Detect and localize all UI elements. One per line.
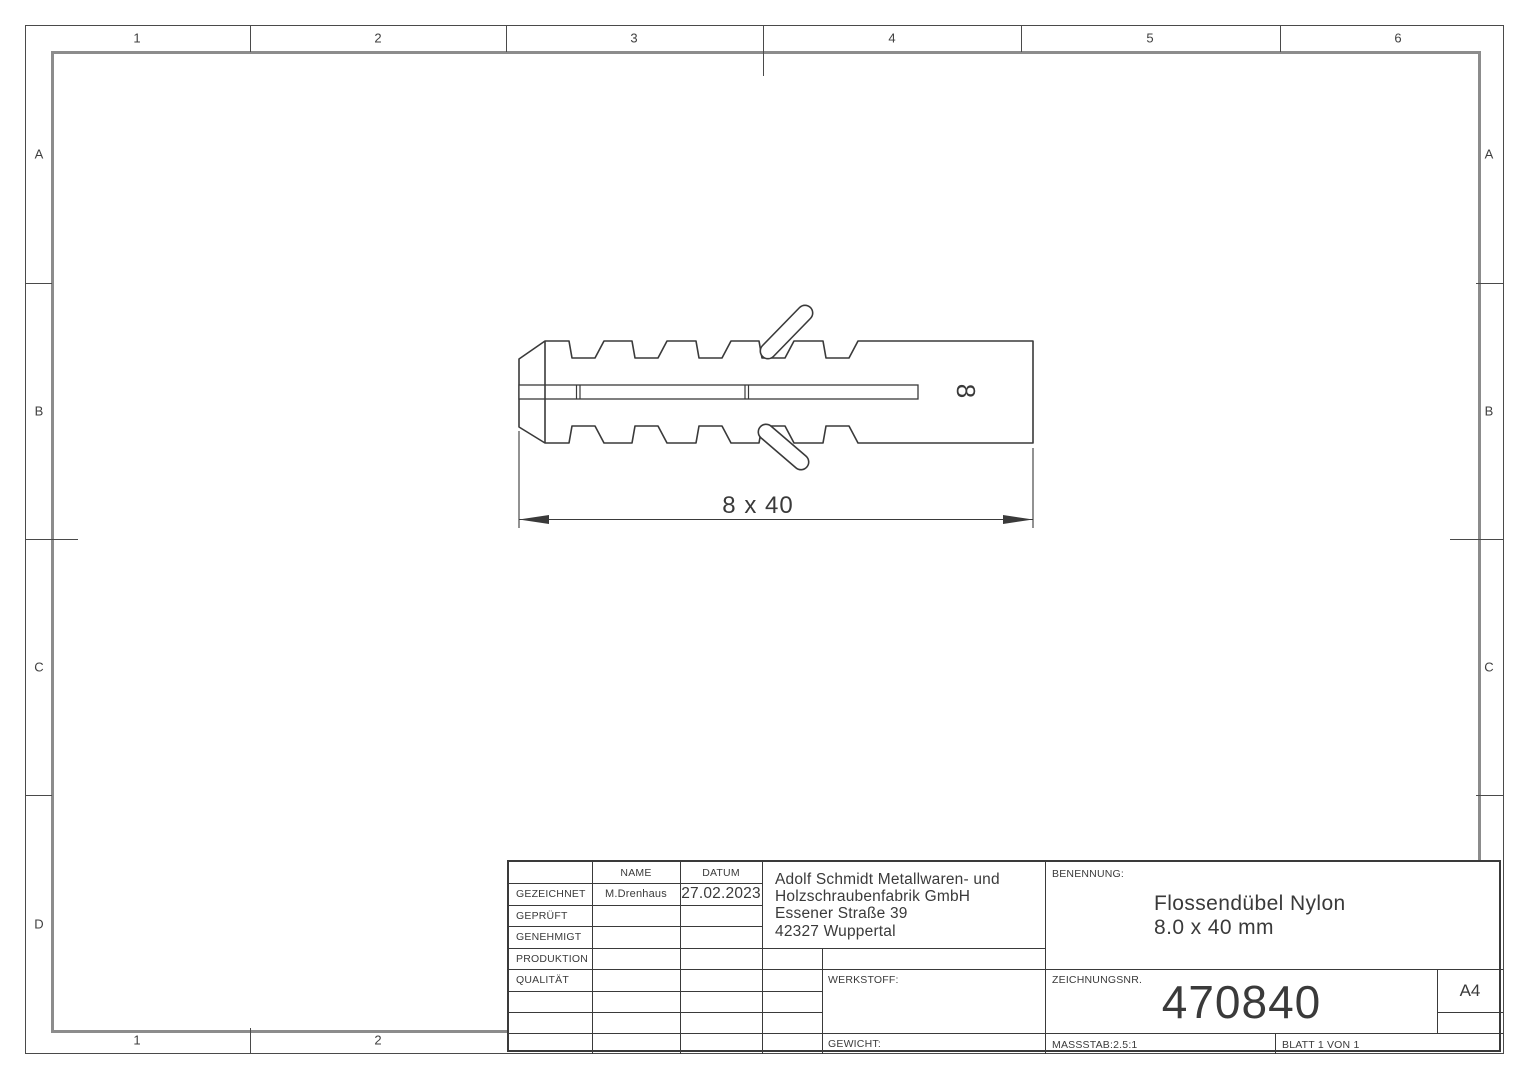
benennung-label: BENENNUNG: (1052, 868, 1124, 880)
paper-size: A4 (1437, 969, 1503, 1012)
company-line: Holzschraubenfabrik GmbH (775, 888, 1000, 905)
row-label-qualitaet: QUALITÄT (516, 974, 569, 986)
part-title-line2: 8.0 x 40 mm (1154, 916, 1346, 940)
title-block-line (509, 948, 1045, 949)
title-block-line (1437, 1012, 1503, 1013)
title-block-line (509, 991, 822, 992)
expansion-slot (519, 385, 918, 399)
werkstoff-label: WERKSTOFF: (828, 974, 899, 986)
massstab: MASSSTAB:2.5:1 (1052, 1039, 1137, 1051)
title-block-line (1275, 1033, 1276, 1054)
title-block-line (509, 1033, 1503, 1034)
dimension-arrow-right (1003, 515, 1033, 524)
title-block-line (762, 862, 763, 1054)
title-block: NAME DATUM GEZEICHNET M.Drenhaus 27.02.2… (507, 860, 1501, 1052)
drawing-sheet: 1 2 3 4 5 6 1 2 A B C D A B C (0, 0, 1528, 1080)
gezeichnet-date: 27.02.2023 (681, 885, 761, 903)
gezeichnet-name: M.Drenhaus (605, 888, 667, 900)
row-label-gezeichnet: GEZEICHNET (516, 888, 586, 900)
header-datum: DATUM (702, 867, 740, 879)
title-block-line (509, 969, 1503, 970)
company-line: Essener Straße 39 (775, 905, 1000, 922)
title-block-line (592, 862, 593, 1054)
part-title-line1: Flossendübel Nylon (1154, 892, 1346, 916)
title-block-line (509, 926, 762, 927)
dimension-arrow-left (519, 515, 549, 524)
title-block-line (509, 883, 762, 884)
company-address: Adolf Schmidt Metallwaren- und Holzschra… (775, 871, 1000, 940)
header-name: NAME (620, 867, 651, 879)
company-line: Adolf Schmidt Metallwaren- und (775, 871, 1000, 888)
part-title: Flossendübel Nylon 8.0 x 40 mm (1154, 892, 1346, 939)
title-block-line (509, 1012, 822, 1013)
title-block-line (509, 905, 762, 906)
row-label-produktion: PRODUKTION (516, 953, 588, 965)
dimension-label: 8 x 40 (722, 492, 793, 519)
diameter-label: 8 (951, 384, 981, 398)
drawing-number: 470840 (1045, 975, 1438, 1029)
title-block-line (822, 948, 823, 1054)
row-label-geprueft: GEPRÜFT (516, 910, 568, 922)
gewicht-label: GEWICHT: (828, 1038, 881, 1050)
blatt: BLATT 1 VON 1 (1282, 1039, 1360, 1051)
row-label-genehmigt: GENEHMIGT (516, 931, 581, 943)
company-line: 42327 Wuppertal (775, 923, 1000, 940)
